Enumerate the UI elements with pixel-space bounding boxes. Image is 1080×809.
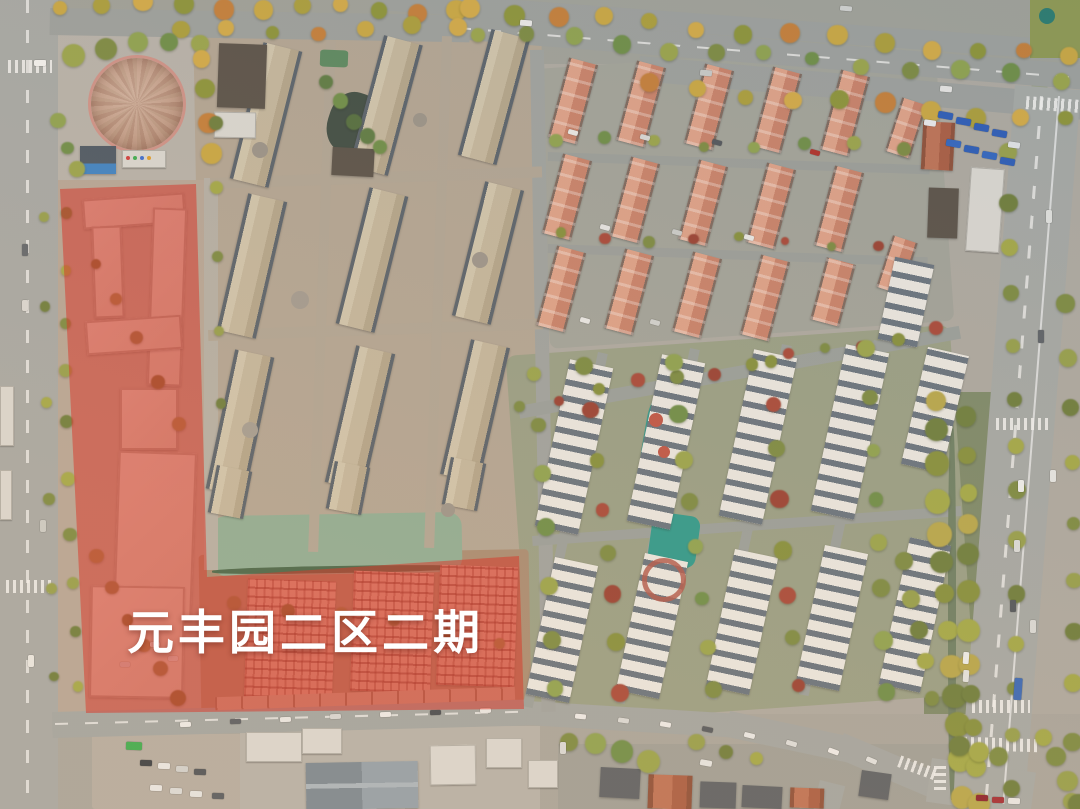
tree (1006, 339, 1019, 352)
tree (1053, 73, 1070, 90)
tree (665, 354, 682, 371)
building-dark (927, 187, 959, 238)
vehicle (1008, 798, 1020, 804)
tree (566, 27, 584, 45)
vehicle (520, 20, 532, 27)
building-blue (80, 146, 116, 174)
tree (957, 619, 980, 642)
tree (40, 301, 51, 312)
tree (1068, 794, 1080, 809)
tree (637, 750, 660, 773)
tree (254, 0, 273, 19)
vehicle (963, 652, 970, 664)
tree (1005, 728, 1019, 742)
crosswalk (972, 700, 1030, 713)
tree (925, 451, 950, 476)
tree (582, 402, 598, 418)
tree (675, 451, 693, 469)
tree (925, 691, 939, 705)
tree (962, 685, 980, 703)
tree (960, 484, 977, 501)
tree (600, 545, 616, 561)
tree (869, 492, 884, 507)
tree (61, 472, 75, 486)
tree (346, 114, 362, 130)
vehicle (330, 714, 341, 719)
tree (734, 232, 744, 242)
vehicle (480, 708, 491, 713)
tree (333, 93, 349, 109)
spot (413, 113, 427, 127)
tree (688, 22, 704, 38)
vehicle (963, 670, 970, 682)
tree (965, 719, 982, 736)
tree (1065, 623, 1080, 640)
landscape-patch (320, 50, 349, 68)
tree (1057, 771, 1077, 791)
tree (640, 73, 659, 92)
vehicle (230, 719, 241, 724)
tree (870, 534, 887, 551)
tree (172, 417, 186, 431)
tree (60, 318, 71, 329)
tree (1003, 285, 1019, 301)
vehicle (1013, 678, 1023, 701)
vehicle (992, 129, 1008, 138)
tree (910, 621, 928, 639)
vehicle (158, 763, 170, 769)
tree (371, 2, 388, 19)
tree (611, 740, 633, 762)
tree (613, 35, 631, 53)
building-terra (790, 787, 825, 808)
vehicle (280, 717, 291, 722)
tree (999, 194, 1017, 212)
tree (527, 367, 541, 381)
tree (878, 683, 896, 701)
vehicle (194, 769, 206, 775)
tree (110, 293, 122, 305)
vehicle (40, 520, 46, 532)
tree (596, 503, 610, 517)
tree (1058, 111, 1073, 126)
tree (923, 41, 942, 60)
building-shed (486, 738, 522, 768)
vehicle (380, 712, 391, 717)
tree (927, 522, 951, 546)
vehicle (1010, 600, 1016, 612)
vehicle (180, 722, 191, 727)
building-graydark (599, 767, 641, 799)
vehicle (1050, 470, 1056, 482)
vehicle (1046, 210, 1052, 223)
tree (756, 45, 771, 60)
tree (357, 21, 374, 38)
tree (792, 679, 805, 692)
tree (151, 375, 165, 389)
tree (1016, 43, 1031, 58)
tree (543, 631, 561, 649)
tree (547, 680, 563, 696)
tree (1063, 733, 1080, 751)
tree (49, 672, 59, 682)
tree (784, 92, 801, 109)
tree (1064, 674, 1080, 692)
tree (874, 631, 892, 649)
tree (105, 581, 118, 594)
tree (554, 396, 564, 406)
tree (669, 405, 687, 423)
building-school (147, 207, 187, 386)
tree (201, 143, 221, 163)
tree (89, 549, 104, 564)
vehicle (840, 5, 852, 11)
building-shed (430, 745, 477, 786)
tree (67, 577, 79, 589)
building-graydark (741, 785, 782, 809)
tree (59, 364, 71, 376)
tree (748, 142, 760, 154)
vehicle (170, 788, 182, 794)
tree (531, 418, 545, 432)
tree (460, 0, 480, 18)
tree (1007, 392, 1022, 407)
aerial-photo: 元丰园二区二期 (0, 0, 1080, 809)
tree (949, 736, 970, 757)
tree (708, 44, 725, 61)
vehicle (1018, 480, 1024, 492)
vehicle (1000, 157, 1016, 166)
tree (1008, 636, 1024, 652)
tree (700, 640, 715, 655)
tree (585, 733, 606, 754)
tree (599, 233, 610, 244)
tree (1002, 63, 1020, 81)
vehicle (940, 85, 952, 92)
tree (925, 418, 948, 441)
spot (147, 156, 151, 160)
tree (1065, 455, 1080, 470)
building-graydark (858, 770, 891, 800)
building-shed (246, 732, 302, 762)
tree (873, 241, 884, 252)
tree (681, 493, 698, 510)
tree (1003, 780, 1020, 797)
crosswalk (996, 418, 1052, 430)
vehicle (982, 151, 998, 160)
tree (70, 626, 80, 636)
tree (935, 584, 954, 603)
tree (471, 28, 485, 42)
vehicle (575, 713, 586, 719)
tree (875, 33, 895, 53)
vehicle (560, 742, 566, 754)
tree (534, 465, 551, 482)
tree (770, 490, 788, 508)
building-graydark (700, 781, 737, 808)
vehicle (176, 766, 188, 772)
tree (590, 453, 604, 467)
tree (209, 116, 223, 130)
tree (1067, 517, 1080, 530)
tree (688, 734, 705, 751)
tree (746, 358, 759, 371)
tree (39, 212, 48, 221)
tree (969, 742, 989, 762)
tree (774, 541, 792, 559)
tree (1056, 294, 1074, 312)
vehicle (974, 123, 990, 132)
tree (61, 207, 73, 219)
vehicle (140, 760, 152, 766)
spot (1039, 8, 1055, 24)
tree (956, 406, 977, 427)
building-shed (528, 760, 558, 788)
tree (738, 90, 753, 105)
parcel-label: 元丰园二区二期 (127, 609, 484, 656)
tree (734, 25, 752, 43)
tree (862, 390, 878, 406)
tree (853, 59, 869, 75)
spot (133, 156, 137, 160)
tree (195, 79, 215, 99)
vehicle (34, 60, 46, 66)
tree (929, 321, 943, 335)
vehicle (190, 791, 202, 797)
tree (957, 580, 980, 603)
building-shed (965, 167, 1005, 253)
tree (556, 227, 567, 238)
spot (252, 142, 268, 158)
building-dark (331, 147, 374, 177)
tree (1062, 399, 1079, 416)
tree (46, 583, 57, 594)
tree (827, 25, 848, 46)
tree (1046, 747, 1065, 766)
spot (126, 156, 130, 160)
road-marking (26, 0, 29, 809)
building-terra (647, 774, 692, 809)
vehicle (956, 117, 972, 126)
tree (266, 26, 279, 39)
tree (61, 265, 71, 275)
tree (875, 92, 896, 113)
tree (895, 552, 913, 570)
vehicle (700, 69, 712, 76)
tree (604, 585, 622, 603)
spot (140, 156, 144, 160)
vehicle (126, 742, 142, 751)
building-hip (306, 761, 419, 809)
tree (951, 60, 969, 78)
tree (1066, 573, 1080, 588)
spot (472, 252, 488, 268)
tree (768, 440, 785, 457)
vehicle (28, 655, 34, 667)
tree (69, 161, 84, 176)
tree (193, 50, 211, 68)
vehicle (22, 244, 28, 256)
tree (61, 142, 74, 155)
vehicle (430, 710, 441, 715)
tree (63, 528, 76, 541)
vehicle (120, 662, 130, 667)
tree (611, 684, 629, 702)
tree (1059, 349, 1077, 367)
tree (549, 7, 569, 27)
vehicle (992, 797, 1004, 803)
tree (938, 621, 957, 640)
vehicle (1038, 330, 1044, 343)
vehicle (1014, 540, 1020, 552)
tree (514, 401, 525, 412)
tree (699, 142, 709, 152)
tree (214, 0, 235, 20)
vehicle (964, 145, 980, 154)
building-shed (302, 728, 342, 754)
tree (989, 747, 1008, 766)
tree (218, 20, 234, 36)
tree (1001, 239, 1018, 256)
tree (160, 33, 178, 51)
tree (641, 13, 657, 29)
vehicle (976, 795, 988, 801)
vehicle (1030, 620, 1036, 633)
tree (798, 137, 811, 150)
tree (781, 237, 789, 245)
spot (242, 422, 258, 438)
vehicle (22, 300, 28, 311)
tree (660, 43, 678, 61)
playground-ring (642, 558, 686, 602)
tree (403, 16, 421, 34)
tree (857, 340, 875, 358)
spot (658, 446, 670, 458)
building-shed (0, 470, 12, 520)
tree (43, 493, 54, 504)
building-school (120, 388, 178, 450)
dirt-mound (91, 58, 183, 150)
spot (441, 503, 455, 517)
vehicle (212, 793, 224, 799)
tree (930, 551, 952, 573)
building-school (91, 226, 124, 319)
tree (643, 236, 654, 247)
tree (598, 131, 611, 144)
tree (73, 681, 84, 692)
tree (670, 370, 684, 384)
tree (805, 52, 818, 65)
tree (360, 128, 376, 144)
tree (50, 113, 65, 128)
vehicle (150, 785, 162, 791)
tree (311, 27, 326, 42)
tree (827, 242, 836, 251)
tree (170, 690, 186, 706)
tree (593, 383, 605, 395)
spot (649, 413, 663, 427)
tree (1060, 47, 1078, 65)
spot (291, 291, 309, 309)
tree (695, 592, 708, 605)
building-dark (217, 43, 267, 109)
building-shed (0, 386, 14, 446)
tree (897, 142, 911, 156)
tree (631, 373, 644, 386)
tree (917, 653, 933, 669)
tree (783, 348, 794, 359)
